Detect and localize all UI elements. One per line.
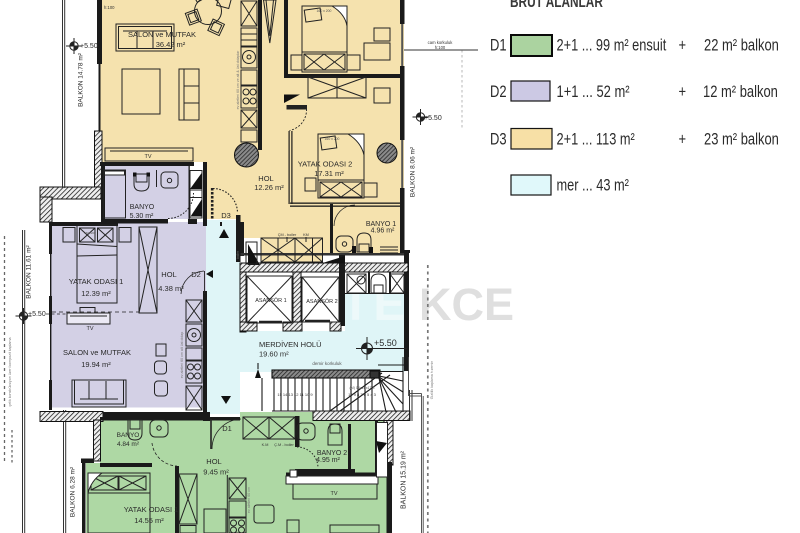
svg-text:4.95 m²: 4.95 m² [316,457,340,464]
svg-text:MERDİVEN HOLÜ: MERDİVEN HOLÜ [259,340,322,349]
svg-text:Gizlilik kaplama h:zemin: Gizlilik kaplama h:zemin [430,361,434,400]
svg-text:BANYO: BANYO [117,432,140,439]
svg-text:+5.50: +5.50 [424,115,442,122]
svg-text:17.31 m²: 17.31 m² [314,169,344,178]
svg-text:2+1 ... 113 m²: 2+1 ... 113 m² [557,131,635,149]
svg-text:ev aletleri 60 cm alt üst dola: ev aletleri 60 cm alt üst dolap [180,332,184,379]
svg-text:ev aletleri 60 cm: ev aletleri 60 cm [247,487,251,513]
svg-text:ÇM - boiler: ÇM - boiler [278,233,297,237]
svg-text:K.M: K.M [262,443,269,447]
svg-text:(M) 04x28x17.5: (M) 04x28x17.5 [350,386,375,390]
svg-text:D2: D2 [191,270,201,279]
svg-text:BALKON 8.06 m²: BALKON 8.06 m² [410,146,417,197]
svg-text:D2: D2 [490,84,507,102]
svg-text:boiler: boiler [236,250,240,259]
svg-text:HOL: HOL [161,270,176,279]
svg-text:160 x 200: 160 x 200 [325,137,340,141]
svg-text:+5.50: +5.50 [80,43,98,50]
svg-text:5.30 m²: 5.30 m² [130,213,154,220]
svg-text:h:100: h:100 [435,45,446,50]
svg-text:TV: TV [86,326,93,332]
svg-text:ASANSÖR 1: ASANSÖR 1 [255,297,286,304]
svg-text:10 9 8 7 6 5 4 3: 10 9 8 7 6 5 4 3 [348,392,377,397]
svg-text:+: + [679,37,687,55]
svg-text:22 m² balkon: 22 m² balkon [704,37,779,55]
svg-text:BANYO 2: BANYO 2 [317,450,347,457]
svg-text:BALKON 14.78 m²: BALKON 14.78 m² [78,52,85,107]
svg-text:12.39 m²: 12.39 m² [81,289,111,298]
svg-text:+5.50: +5.50 [374,338,397,348]
svg-text:4.96 m²: 4.96 m² [371,228,395,235]
svg-text:4.38 m²: 4.38 m² [158,284,184,293]
svg-text:Ç.M - boiler: Ç.M - boiler [274,443,294,447]
svg-text:KCE: KCE [419,279,514,330]
svg-text:YATAK ODASI 1: YATAK ODASI 1 [69,277,124,286]
svg-text:4.84 m²: 4.84 m² [117,441,140,448]
svg-text:YATAK ODASI 1: YATAK ODASI 1 [124,505,179,514]
svg-text:TV: TV [330,491,337,497]
svg-text:12.26 m²: 12.26 m² [254,183,284,192]
svg-text:9.45 m²: 9.45 m² [203,468,229,477]
svg-text:KM: KM [303,233,309,237]
svg-text:BALKON 6.28 m²: BALKON 6.28 m² [70,466,77,517]
svg-text:+5.50: +5.50 [28,311,46,318]
svg-text:TV: TV [144,154,151,160]
svg-text:h:100: h:100 [104,5,115,10]
svg-text:2+1 ... 99 m² ensuit: 2+1 ... 99 m² ensuit [557,37,667,55]
svg-text:BRUT ALANLAR: BRUT ALANLAR [510,0,603,10]
svg-text:ev aletleri 60 cm ve alt & ü: ev aletleri 60 cm ve alt & üst dolaplar [236,50,240,110]
svg-text:D1: D1 [222,424,232,433]
svg-text:ASANSÖR 2: ASANSÖR 2 [306,298,337,305]
svg-text:BANYO: BANYO [130,204,155,211]
svg-text:SALON ve MUTFAK: SALON ve MUTFAK [128,30,196,39]
svg-text:+: + [679,131,687,149]
svg-text:1+1 ... 52 m²: 1+1 ... 52 m² [557,84,630,102]
svg-text:çelik konstrüksiyon üzeri komp: çelik konstrüksiyon üzeri kompozit kapla… [8,338,12,407]
svg-text:YATAK ODASI 2: YATAK ODASI 2 [298,160,353,169]
svg-text:160 x 200: 160 x 200 [317,9,332,13]
svg-text:14.55 m²: 14.55 m² [134,516,164,525]
svg-text:mer ... 43 m²: mer ... 43 m² [557,177,630,195]
svg-text:15 14 13 12 11 10 9: 15 14 13 12 11 10 9 [277,392,313,397]
svg-text:BALKON 11.61 m²: BALKON 11.61 m² [26,244,33,298]
svg-text:23 m² balkon: 23 m² balkon [704,131,779,149]
svg-text:HOL: HOL [206,457,221,466]
svg-text:12 m² balkon: 12 m² balkon [703,84,778,102]
svg-text:19.94 m²: 19.94 m² [81,360,111,369]
svg-text:HOL: HOL [258,174,273,183]
svg-text:D3: D3 [490,131,507,149]
svg-text:BALKON 15.19 m²: BALKON 15.19 m² [401,450,408,509]
svg-text:D3: D3 [221,211,231,220]
svg-text:160x200: 160x200 [84,231,96,235]
svg-text:demir korkuluk: demir korkuluk [312,361,342,366]
svg-text:36.42 m²: 36.42 m² [156,40,186,49]
svg-text:D1: D1 [490,37,507,55]
svg-text:19.60 m²: 19.60 m² [259,350,289,359]
svg-text:+: + [679,84,687,102]
svg-text:SALON ve MUTFAK: SALON ve MUTFAK [63,348,131,357]
